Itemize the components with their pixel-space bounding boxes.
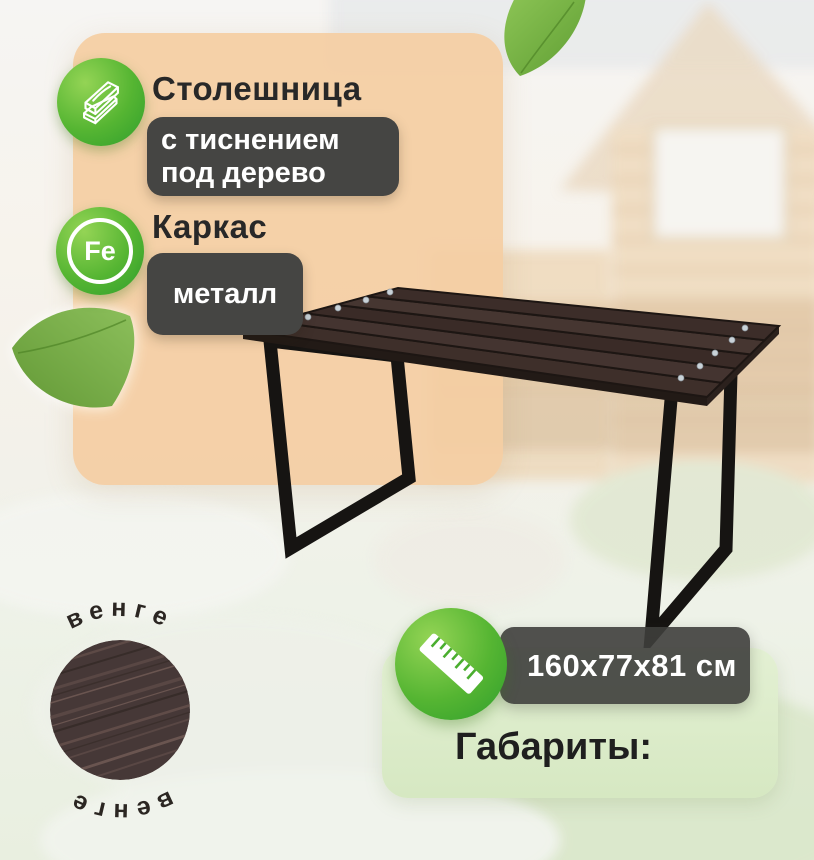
wood-texture-swatch: [34, 624, 220, 784]
product-card: Столешница с тиснением под дерево Fe Кар…: [0, 0, 814, 860]
fe-ring: Fe: [67, 218, 133, 284]
badge-line-1: с тиснением: [161, 124, 399, 157]
feature-title-frame: Каркас: [152, 208, 267, 246]
dimensions-badge: 160x77x81 см: [500, 627, 750, 704]
badge-metal-label: металл: [173, 278, 277, 311]
table-leg-left: [270, 341, 409, 548]
dimensions-label: Габариты:: [455, 726, 652, 769]
table-leg-right: [651, 374, 731, 637]
dimensions-value: 160x77x81 см: [527, 648, 737, 684]
ruler-glyph: [395, 608, 507, 720]
ruler-icon: [395, 608, 507, 720]
wood-planks-icon: [57, 58, 145, 146]
wood-planks-glyph: [70, 71, 132, 133]
tabletop-planks: [243, 288, 779, 397]
swatch-name-bottom: венге: [61, 785, 178, 826]
feature-badge-frame: металл: [147, 253, 303, 335]
feature-badge-tabletop: с тиснением под дерево: [147, 117, 399, 196]
fe-symbol: Fe: [84, 236, 116, 267]
color-swatch: венге венге: [18, 598, 232, 842]
feature-title-tabletop: Столешница: [152, 70, 362, 108]
swatch-name-top: венге: [61, 598, 178, 635]
badge-line-2: под дерево: [161, 157, 399, 190]
tabletop: [243, 288, 779, 406]
fe-icon: Fe: [56, 207, 144, 295]
